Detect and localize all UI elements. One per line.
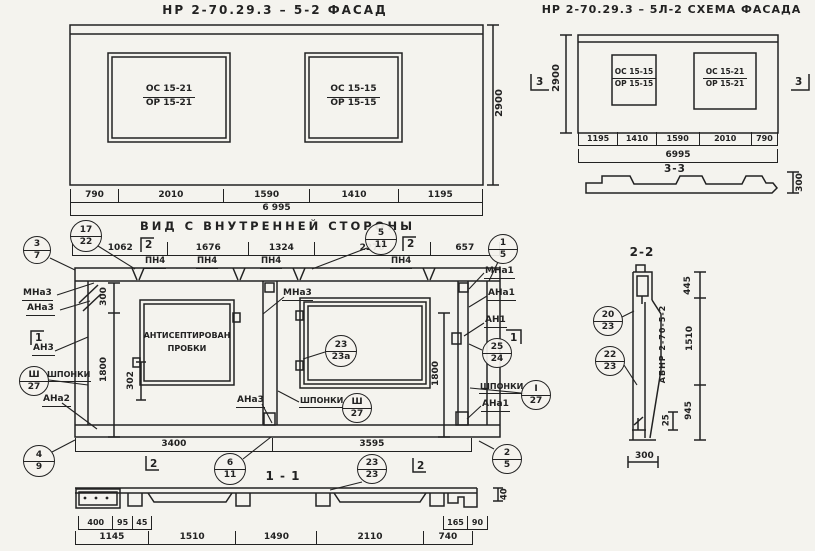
label-ana3-left: АНа3	[26, 304, 55, 316]
marker-bottom: 24	[491, 354, 504, 365]
inner-top-dim-row: 1062 1676 1324 2276 657	[72, 242, 500, 256]
window-mark-bottom: ОР 15-15	[615, 79, 653, 89]
pn4-label-2: ПН4	[196, 257, 218, 269]
dim-label: 1490	[264, 533, 289, 544]
label-an1: АН1	[484, 316, 507, 328]
marker-top: 17	[71, 225, 101, 237]
marker-top: I	[522, 384, 550, 396]
dim-segment: 2010	[118, 189, 223, 203]
dim-segment: 1195	[398, 189, 484, 203]
schema-total-dim-row: 6995	[578, 149, 778, 163]
label-ana1-bottom: АНа1	[481, 400, 510, 412]
marker-top: 20	[594, 310, 622, 322]
dim-label: 1410	[341, 191, 366, 202]
plugs-note-line1: АНТИСЕПТИРОВАН	[142, 330, 232, 343]
dim-segment: 1195	[578, 132, 617, 146]
detail-marker-sh-27-right: I 27	[521, 380, 551, 410]
marker-top: 23	[358, 458, 386, 470]
label-mna3-center: МНа3	[282, 289, 313, 301]
label-shponki-left: ШПОНКИ	[46, 371, 91, 382]
marker-top: Ш	[20, 370, 48, 382]
marker-bottom: 27	[351, 409, 364, 420]
dim-label: 2010	[158, 191, 183, 202]
schema-window-left-mark: ОС 15-15 ОР 15-15	[612, 67, 656, 89]
marker-bottom: 5	[504, 460, 510, 471]
marker-top: 5	[366, 228, 396, 240]
marker-top: 22	[596, 350, 624, 362]
marker-bottom: 23	[602, 322, 615, 333]
label-shponki-right: ШПОНКИ	[479, 383, 524, 394]
dim-label: 400	[87, 519, 104, 529]
facade-dim-row: 790 2010 1590 1410 1195	[70, 189, 483, 203]
inner-dim-302: 302	[127, 371, 136, 390]
marker-bottom: 11	[375, 240, 388, 251]
s22-dim-945: 945	[685, 401, 694, 420]
s11-small-dims-right: 165 90	[443, 516, 488, 530]
dim-segment: 790	[70, 189, 118, 203]
facade-total-dim-row: 6 995	[70, 202, 483, 216]
inner-bottom-dim-row: 3400 3595	[75, 438, 472, 452]
dim-segment: 1410	[617, 132, 656, 146]
dim-label: 45	[136, 519, 147, 529]
panel-mark-text: АБНР 2-70-5-2	[659, 305, 667, 383]
detail-marker-17-22: 17 22	[70, 220, 102, 252]
s22-dim-25: 25	[663, 414, 672, 426]
marker-bottom: 5	[500, 250, 506, 261]
detail-marker-2-5: 2 5	[492, 444, 522, 474]
label-ana1-top: АНа1	[487, 289, 516, 301]
window-mark-bottom: ОР 15-21	[146, 98, 192, 110]
dim-segment: 95	[112, 516, 131, 530]
schema-title: НР 2-70.29.3 – 5Л-2 СХЕМА ФАСАДА	[528, 3, 815, 16]
dim-label: 1145	[99, 533, 124, 544]
dim-segment: 400	[78, 516, 112, 530]
dim-segment: 90	[467, 516, 488, 530]
plugs-note-line2: ПРОБКИ	[142, 343, 232, 356]
dim-label: 165	[447, 519, 464, 529]
section-1-1-title: 1 - 1	[256, 469, 310, 483]
dim-label: 95	[117, 519, 128, 529]
dim-label: 1590	[254, 191, 279, 202]
pn4-label-1: ПН4	[144, 257, 166, 269]
detail-marker-4-9: 4 9	[23, 445, 55, 477]
marker-top: 1	[489, 238, 517, 250]
s11-dim-40: 40	[501, 488, 510, 500]
marker-top: 23	[326, 340, 356, 352]
label-shponki-center: ШПОНКИ	[299, 397, 344, 408]
marker-bottom: 27	[530, 396, 543, 407]
dim-label: 1324	[269, 244, 294, 255]
section-3-3-title: 3-3	[660, 163, 690, 175]
dim-label: 1062	[108, 244, 133, 255]
s22-dim-300: 300	[635, 452, 654, 461]
inner-flag-bottom-left: 2	[150, 459, 157, 470]
detail-marker-25-24: 25 24	[482, 338, 512, 368]
inner-dim-1800-left: 1800	[100, 357, 109, 382]
dim-label: 1195	[587, 135, 609, 145]
label-mna1: МНа1	[484, 267, 515, 279]
dim-label: 1676	[196, 244, 221, 255]
label-mna3-left: МНа3	[22, 289, 53, 301]
marker-top: 25	[483, 342, 511, 354]
marker-top: 4	[24, 450, 54, 462]
marker-bottom: 7	[34, 251, 40, 262]
detail-marker-6-11: 6 11	[214, 453, 246, 485]
dim-segment: 45	[132, 516, 152, 530]
section-3-3-dim: 300	[796, 173, 805, 192]
dim-label: 6995	[665, 151, 690, 162]
detail-marker-5-11: 5 11	[365, 223, 397, 255]
dim-label: 3400	[161, 440, 186, 451]
dim-segment: 1676	[167, 242, 248, 256]
marker-top: 2	[493, 448, 521, 460]
dim-segment: 790	[751, 132, 778, 146]
detail-marker-3-7: 3 7	[23, 236, 51, 264]
dim-label: 657	[455, 244, 474, 255]
dim-label: 790	[756, 135, 773, 145]
detail-marker-1-5: 1 5	[488, 234, 518, 264]
inner-view-title: ВИД С ВНУТРЕННЕЙ СТОРОНЫ	[140, 219, 400, 233]
marker-bottom: 22	[80, 237, 93, 248]
detail-marker-22-23: 22 23	[595, 346, 625, 376]
facade-height-dim: 2900	[495, 89, 505, 117]
dim-segment: 6 995	[70, 202, 483, 216]
dim-segment: 1145	[75, 531, 148, 545]
section-2-2-title: 2-2	[624, 245, 660, 259]
window-mark-top: ОС 15-21	[703, 67, 747, 79]
dim-segment: 1590	[223, 189, 310, 203]
dim-segment: 6995	[578, 149, 778, 163]
dim-segment: 2110	[316, 531, 422, 545]
inner-dim-1800-right: 1800	[432, 361, 441, 386]
dim-segment: 1510	[148, 531, 236, 545]
dim-segment: 1324	[248, 242, 314, 256]
marker-bottom: 23а	[332, 352, 351, 363]
dim-label: 790	[85, 191, 104, 202]
detail-marker-23-23a: 23 23а	[325, 335, 357, 367]
inner-flag-bottom-right: 2	[417, 461, 424, 472]
marker-bottom: 9	[36, 462, 42, 473]
label-ana3-center: АНа3	[236, 396, 265, 408]
antiseptic-plugs-note: АНТИСЕПТИРОВАН ПРОБКИ	[142, 330, 232, 356]
detail-marker-23-23: 23 23	[357, 454, 387, 484]
inner-flag-top-left: 2	[145, 240, 152, 251]
label-ana2: АНа2	[42, 395, 71, 407]
dim-segment: 3595	[272, 438, 472, 452]
dim-label: 2110	[358, 533, 383, 544]
window-mark-bottom: ОР 15-15	[330, 98, 376, 110]
blueprint-sheet: НР 2-70.29.3 – 5-2 ФАСАД НР 2-70.29.3 – …	[0, 0, 815, 551]
dim-segment: 3400	[75, 438, 272, 452]
marker-bottom: 27	[28, 382, 41, 393]
pn4-label-3: ПН4	[260, 257, 282, 269]
dim-label: 740	[438, 533, 457, 544]
dim-segment: 1490	[235, 531, 316, 545]
dim-segment: 165	[443, 516, 467, 530]
window-mark-bottom: ОР 15-21	[706, 79, 744, 89]
dim-label: 1590	[667, 135, 689, 145]
inner-flag-left: 1	[35, 333, 42, 344]
s11-small-dims-left: 400 95 45	[78, 516, 152, 530]
label-an3: АН3	[32, 344, 55, 356]
marker-bottom: 23	[366, 470, 379, 481]
dim-label: 3595	[359, 440, 384, 451]
schema-flag-left: 3	[536, 77, 543, 88]
facade-title: НР 2-70.29.3 – 5-2 ФАСАД	[130, 3, 420, 17]
marker-top: Ш	[343, 397, 371, 409]
facade-window-right-mark: ОС 15-15 ОР 15-15	[305, 84, 402, 109]
inner-flag-top-right: 2	[407, 239, 414, 250]
s22-dim-445: 445	[684, 276, 693, 295]
schema-flag-right: 3	[795, 77, 802, 88]
schema-dim-row: 1195 1410 1590 2010 790	[578, 132, 778, 146]
dim-label: 1410	[626, 135, 648, 145]
marker-bottom: 11	[224, 470, 237, 481]
dim-segment: 2010	[699, 132, 751, 146]
s11-bottom-dim-row: 1145 1510 1490 2110 740	[75, 531, 473, 545]
marker-top: 3	[24, 239, 50, 251]
dim-label: 1510	[180, 533, 205, 544]
marker-top: 6	[215, 458, 245, 470]
window-mark-top: ОС 15-15	[327, 84, 379, 98]
pn4-label-4: ПН4	[390, 257, 412, 269]
window-mark-top: ОС 15-15	[612, 67, 656, 79]
dim-label: 6 995	[262, 204, 290, 215]
window-mark-top: ОС 15-21	[143, 84, 195, 98]
s22-dim-1510: 1510	[686, 326, 695, 351]
dim-label: 90	[472, 519, 483, 529]
dim-label: 1195	[428, 191, 453, 202]
dim-label: 2010	[714, 135, 736, 145]
inner-dim-300: 300	[100, 287, 109, 306]
detail-marker-sh-27-left: Ш 27	[19, 366, 49, 396]
detail-marker-sh-27-center: Ш 27	[342, 393, 372, 423]
dim-segment: 740	[423, 531, 473, 545]
dim-segment: 1410	[309, 189, 397, 203]
facade-window-left-mark: ОС 15-21 ОР 15-21	[108, 84, 230, 109]
schema-height-dim: 2900	[552, 64, 562, 92]
schema-window-right-mark: ОС 15-21 ОР 15-21	[694, 67, 756, 89]
marker-bottom: 23	[604, 362, 617, 373]
inner-flag-right: 1	[510, 333, 517, 344]
detail-marker-20-23: 20 23	[593, 306, 623, 336]
dim-segment: 1590	[656, 132, 699, 146]
